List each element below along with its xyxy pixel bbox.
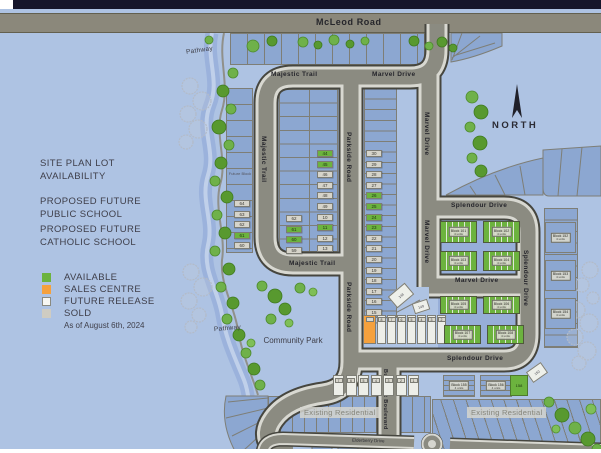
townhome-block: Block 1074 units — [444, 325, 481, 344]
lot-tag: 12 — [317, 235, 333, 242]
townhome-block: Block 1034 units — [440, 251, 477, 271]
lot: 3 — [427, 315, 437, 344]
top-dark-bar — [0, 0, 601, 9]
lot-tag: 46 — [317, 171, 333, 178]
townhome-row-1: Block 1014 unitsBlock 1024 units — [440, 221, 520, 243]
public-school-note: PROPOSED FUTURE PUBLIC SCHOOL — [40, 196, 152, 222]
road-label-elderberry: Elderberry Drive — [352, 438, 385, 444]
legend: AVAILABLE SALES CENTRE FUTURE RELEASE SO… — [42, 271, 155, 330]
legend-item: SOLD — [42, 307, 155, 319]
lot-tag: 4 — [418, 317, 426, 322]
north-label: NORTH — [492, 120, 538, 131]
road-label-splendour-east: Splendour Drive — [522, 250, 529, 306]
road-label-splendour-north: Splendour Drive — [451, 202, 507, 209]
lot-tag: 21 — [366, 245, 382, 252]
legend-label: FUTURE RELEASE — [64, 296, 155, 307]
lot-tag: 5 — [360, 378, 368, 383]
existing-residential-badge-east: Existing Residential — [467, 407, 546, 418]
lot-tag: 2 — [438, 317, 446, 322]
creek-lot-tags: 6463626160 — [234, 200, 250, 249]
lot-tag: 30 — [366, 150, 382, 157]
lot: 4 — [371, 375, 382, 396]
sales-centre-lot-row: 8 7 6 5 4 3 2 — [363, 315, 446, 345]
lot-tag: 29 — [366, 161, 382, 168]
road-label-parkside-lower: Parkside Road — [345, 282, 352, 332]
lot-tag: 6 — [347, 378, 355, 383]
lot — [363, 315, 376, 344]
east-future-blocks: Block 1524 unitsBlock 1534 unitsBlock 15… — [545, 222, 576, 329]
lot-tag: 60 — [234, 242, 250, 249]
lot: 5 — [358, 375, 369, 396]
site-plan-map: McLeod Road Majestic Trail Marvel Drive … — [0, 0, 601, 453]
lot-tag: 3 — [385, 378, 393, 383]
lot-tag: 45 — [317, 161, 333, 168]
lot-tag: 48 — [317, 192, 333, 199]
legend-label: SOLD — [64, 308, 91, 319]
pathway-label-bottom: Pathway — [214, 324, 242, 333]
future-block: Block 1524 units — [545, 222, 576, 253]
lot-tag: 2 — [397, 378, 405, 383]
future-block-label: Future Block — [227, 171, 253, 176]
lot-tag: 6 — [398, 317, 406, 322]
road-label-majestic-top: Majestic Trail — [271, 71, 317, 78]
existing-residential-badge-west: Existing Residential — [300, 407, 379, 418]
future-block: Block 1534 units — [545, 260, 576, 291]
lot-tag: 47 — [317, 182, 333, 189]
road-label-majestic-vertical: Majestic Trail — [260, 136, 267, 182]
road-label-majestic-lower: Majestic Trail — [289, 260, 335, 267]
road-label-splendour-south: Splendour Drive — [447, 355, 503, 362]
townhome-block: Block 1044 units — [483, 251, 520, 271]
lot-tag: 8 — [378, 317, 386, 322]
mcleod-road — [0, 13, 601, 33]
townhome-block: Block 1024 units — [483, 221, 520, 243]
majestic-right-lot-tags: 44454647484910111213 — [317, 150, 333, 252]
south-future-blocks: Block 1554 unitsBlock 1564 units — [443, 375, 512, 397]
legend-swatch-icon — [42, 297, 51, 306]
lot-tag: 3 — [428, 317, 436, 322]
site-plan-page: McLeod Road Majestic Trail Marvel Drive … — [0, 0, 601, 453]
townhome-block: Block 1054 units — [440, 296, 477, 314]
road-label-marvel-mid: Marvel Drive — [455, 277, 498, 284]
future-block: Block 1564 units — [480, 375, 512, 397]
lot: 6 — [346, 375, 357, 396]
lot-tag: 11 — [317, 224, 333, 231]
butternut-lot-row: 7 6 5 4 3 2 1 — [333, 375, 419, 397]
lot-tag: 20 — [366, 256, 382, 263]
legend-label: AVAILABLE — [64, 272, 117, 283]
future-block: Block 1544 units — [545, 298, 576, 329]
lot: 6 — [397, 315, 407, 344]
lot-tag: 13 — [317, 245, 333, 252]
lot-tag: 19 — [366, 267, 382, 274]
lot-tag: 49 — [317, 203, 333, 210]
legend-swatch-icon — [42, 309, 51, 318]
road-label-mcleod: McLeod Road — [316, 17, 382, 27]
legend-label: SALES CENTRE — [64, 284, 141, 295]
lot: 3 — [383, 375, 394, 396]
road-label-marvel-top: Marvel Drive — [372, 71, 415, 78]
lot-tag: 4 — [372, 378, 380, 383]
townhome-block: Block 1064 units — [483, 296, 520, 314]
townhome-block: Block 1084 units — [487, 325, 524, 344]
future-block: Block 1554 units — [443, 375, 475, 397]
lot-tag: 62 — [286, 215, 302, 222]
lot-tag: 28 — [366, 171, 382, 178]
future-block-149: 149 — [412, 299, 431, 314]
lot: 5 — [407, 315, 417, 344]
catholic-school-note: PROPOSED FUTURE CATHOLIC SCHOOL — [40, 224, 152, 250]
lot-tag: 22 — [366, 235, 382, 242]
legend-swatch-icon — [42, 285, 51, 294]
majestic-left-lot-tags: 62616059 — [286, 215, 302, 254]
townhome-row-3: Block 1054 unitsBlock 1064 units — [440, 296, 520, 314]
lot: 7 — [387, 315, 397, 344]
lot-tag: 7 — [388, 317, 396, 322]
lot-tag: 17 — [366, 288, 382, 295]
lot-tag: 59 — [286, 247, 302, 254]
north-arrow-icon — [512, 84, 522, 118]
lot: 8 — [377, 315, 387, 344]
legend-items: AVAILABLE SALES CENTRE FUTURE RELEASE SO… — [42, 271, 155, 319]
page-title: SITE PLAN LOT AVAILABILITY — [40, 158, 140, 184]
top-left-corner — [0, 0, 13, 9]
townhome-block: Block 1014 units — [440, 221, 477, 243]
lot-tag: 1 — [410, 378, 418, 383]
lot: 4 — [417, 315, 427, 344]
legend-item: SALES CENTRE — [42, 283, 155, 295]
lot-tag: 26 — [366, 192, 382, 199]
lot-tag: 44 — [317, 150, 333, 157]
lot-tag: 62 — [234, 221, 250, 228]
townhome-row-4: Block 1074 unitsBlock 1084 units — [444, 325, 524, 344]
future-block-150: 150 — [526, 362, 548, 383]
community-park-label: Community Park — [262, 336, 324, 345]
legend-swatch-icon — [42, 273, 51, 282]
lot-tag: 61 — [234, 232, 250, 239]
lot-tag: 18 — [366, 277, 382, 284]
lot-tag — [366, 317, 374, 322]
as-of-date: As of August 6th, 2024 — [64, 321, 155, 330]
block-center-line — [309, 90, 310, 251]
legend-item: FUTURE RELEASE — [42, 295, 155, 307]
lot-tag: 27 — [366, 182, 382, 189]
lot-tag: 7 — [335, 378, 343, 383]
lot: 2 — [396, 375, 407, 396]
lot-tag: 64 — [234, 200, 250, 207]
lot-tag: 23 — [366, 224, 382, 231]
road-label-marvel-vertical-mid: Marvel Drive — [423, 220, 430, 263]
parkside-lot-tags: 30292827262524232221201918171615 — [366, 150, 382, 316]
lot-tag: 61 — [286, 226, 302, 233]
lot: 7 — [333, 375, 344, 396]
available-block-158: 158 — [510, 375, 528, 396]
townhome-row-2: Block 1034 unitsBlock 1044 units — [440, 251, 520, 271]
bottom-edge — [0, 449, 601, 453]
lot-tag: 5 — [408, 317, 416, 322]
legend-item: AVAILABLE — [42, 271, 155, 283]
lot: 1 — [408, 375, 419, 396]
pathway-label-top: Pathway — [186, 45, 214, 56]
lot-tag: 60 — [286, 236, 302, 243]
lot-tag: 10 — [317, 214, 333, 221]
lot-tag: 63 — [234, 211, 250, 218]
mcleod-frontage-lots — [230, 33, 425, 65]
lot-tag: 16 — [366, 298, 382, 305]
lot-tag: 24 — [366, 214, 382, 221]
road-label-parkside-upper: Parkside Road — [345, 132, 352, 182]
lot-tag: 25 — [366, 203, 382, 210]
road-label-marvel-vertical-north: Marvel Drive — [423, 112, 430, 155]
